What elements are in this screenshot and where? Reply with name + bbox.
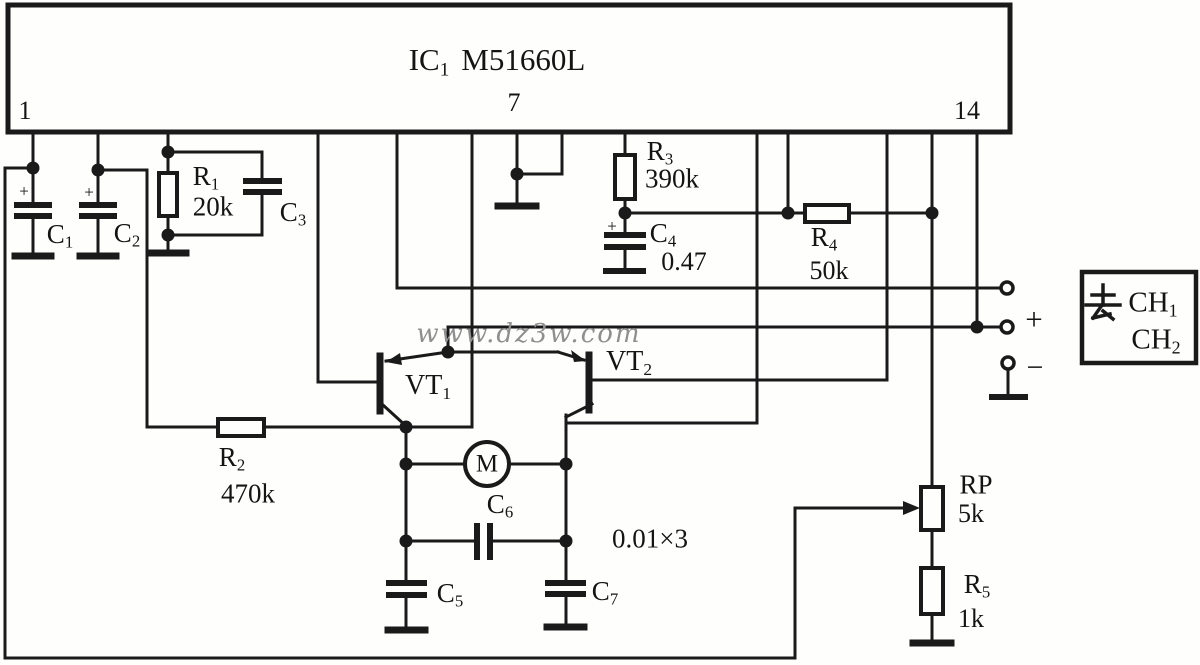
- pot-rp-label: RP: [959, 472, 992, 499]
- cap-c4-value: 0.47: [661, 249, 707, 275]
- ic-pin14-number: 14: [954, 98, 980, 124]
- cap-c1-polarity: +: [19, 183, 29, 200]
- ch1-sub: 1: [1169, 301, 1178, 321]
- cap-c2-label: C2: [114, 220, 140, 250]
- motor-label: M: [476, 452, 498, 477]
- res-r4-label: R4: [811, 224, 837, 254]
- ic-part-number: M51660L: [461, 42, 585, 77]
- capacitor-c2: [80, 205, 116, 256]
- cap-c6-label: C6: [487, 491, 513, 521]
- cap-c3-label: C3: [280, 199, 306, 229]
- ic-title: IC1M51660L: [409, 44, 586, 80]
- cap-c4-label: C4: [650, 220, 676, 250]
- ic-designator: IC: [409, 42, 440, 77]
- cap-c5-label: C5: [437, 580, 463, 610]
- schematic-page: IC1M51660L 1 7 14 www.dz3w.com + − 去 CH1…: [0, 0, 1200, 665]
- cap-value-note: 0.01×3: [612, 526, 688, 553]
- capacitor-c1: [15, 205, 51, 256]
- output-terminals: [992, 282, 1025, 397]
- terminal-minus-sign: −: [1027, 353, 1044, 383]
- ic-pin1-number: 1: [19, 98, 32, 124]
- ch2-text: CH: [1131, 323, 1171, 355]
- vt2-emitter-arrow: [571, 350, 586, 362]
- capacitor-c7: [547, 583, 584, 627]
- res-r5-label: R5: [964, 571, 990, 601]
- vt1-emitter-arrow: [386, 353, 402, 365]
- resistor-r5: [913, 568, 951, 643]
- resistor-r1: [159, 173, 177, 216]
- resistor-r4: [805, 205, 849, 222]
- output-ch2-label: CH2: [1131, 325, 1180, 356]
- terminal-plus-sign: +: [1025, 304, 1042, 335]
- output-ch1-label: CH1: [1128, 288, 1177, 319]
- capacitor-c3: [246, 181, 279, 192]
- ic-pin7-number: 7: [508, 90, 521, 116]
- res-r1-label: R1: [193, 163, 219, 193]
- cap-c1-label: C1: [47, 221, 73, 251]
- rp-wiper-arrow: [903, 501, 920, 515]
- res-r2-label: R2: [219, 444, 245, 474]
- terminal-1: [1001, 282, 1013, 294]
- res-r4-value: 50k: [810, 258, 849, 284]
- res-r5-value: 1k: [958, 606, 984, 632]
- transistor-vt2: [566, 355, 592, 417]
- terminal-plus: [1001, 321, 1013, 333]
- cap-c7-label: C7: [592, 578, 618, 608]
- cap-c2-polarity: +: [84, 184, 94, 201]
- resistor-r2: [218, 419, 406, 436]
- capacitor-c6: [406, 526, 566, 557]
- net-pin7-pin8-ground: [498, 132, 562, 206]
- net-pin4-vt1base: [318, 132, 376, 382]
- transistor-vt1-label: VT1: [405, 372, 451, 402]
- res-r3-value: 390k: [645, 166, 699, 193]
- resistor-r3: [615, 132, 635, 213]
- net-vt2col-pin10: [566, 132, 757, 583]
- cap-c4-polarity: +: [607, 218, 617, 235]
- res-r1-value: 20k: [193, 194, 234, 221]
- res-r2-value: 470k: [221, 481, 275, 508]
- terminal-minus: [1002, 357, 1014, 369]
- capacitor-c5: [388, 583, 425, 630]
- potentiometer-rp: [795, 487, 943, 568]
- transistor-vt2-label: VT2: [606, 348, 652, 378]
- watermark: www.dz3w.com: [416, 321, 641, 347]
- pot-rp-value: 5k: [958, 501, 984, 527]
- ic-designator-sub: 1: [440, 60, 450, 81]
- ch1-text: CH: [1128, 286, 1168, 318]
- ch2-sub: 2: [1172, 338, 1181, 358]
